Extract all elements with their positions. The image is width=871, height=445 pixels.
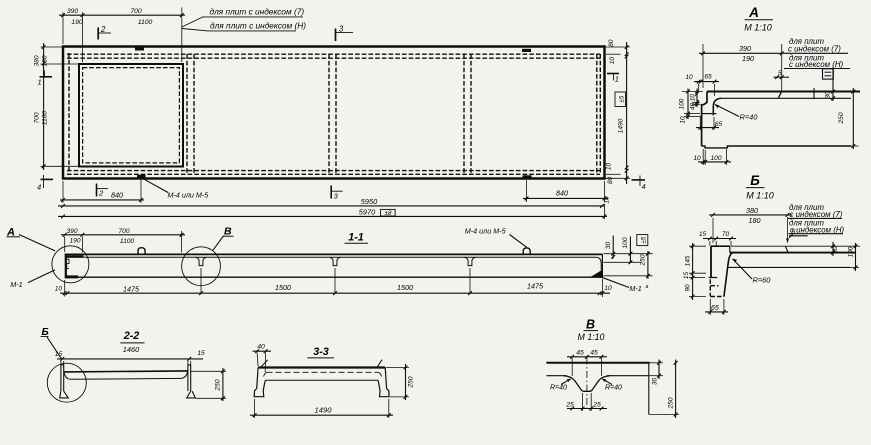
svg-text:250: 250	[667, 397, 674, 409]
svg-text:30: 30	[652, 378, 659, 386]
svg-text:380: 380	[746, 206, 758, 215]
svg-text:65: 65	[715, 121, 723, 128]
svg-text:для плит с индексом (Н): для плит с индексом (Н)	[210, 21, 306, 31]
svg-text:15: 15	[699, 231, 707, 238]
svg-text:10: 10	[604, 196, 611, 204]
svg-text:65: 65	[711, 305, 719, 312]
svg-text:10: 10	[685, 74, 693, 81]
svg-text:380: 380	[34, 55, 41, 66]
svg-text:4: 4	[642, 182, 646, 191]
svg-text:а: а	[646, 284, 649, 290]
svg-text:10: 10	[606, 163, 613, 171]
svg-text:2: 2	[98, 188, 104, 197]
svg-text:70: 70	[722, 231, 730, 238]
svg-text:40: 40	[689, 102, 696, 110]
svg-text:390: 390	[66, 228, 77, 235]
svg-text:15: 15	[197, 350, 205, 357]
svg-text:1100: 1100	[120, 238, 135, 245]
svg-text:250: 250	[640, 254, 647, 266]
svg-text:R=40: R=40	[605, 384, 622, 391]
svg-text:15: 15	[683, 272, 690, 280]
svg-text:2-2: 2-2	[123, 330, 140, 342]
svg-text:1: 1	[38, 78, 42, 87]
svg-text:1475: 1475	[527, 282, 544, 291]
svg-text:190: 190	[742, 54, 754, 63]
svg-text:В: В	[586, 318, 595, 332]
svg-text:45: 45	[590, 350, 598, 357]
svg-text:Б: Б	[750, 173, 760, 188]
svg-text:±5: ±5	[618, 95, 625, 103]
svg-text:45: 45	[576, 350, 584, 357]
svg-text:с индексом (Н): с индексом (Н)	[789, 60, 844, 69]
svg-text:4: 4	[37, 183, 41, 192]
svg-text:1500: 1500	[397, 283, 413, 292]
svg-text:80: 80	[607, 177, 614, 185]
svg-text:1100: 1100	[41, 111, 48, 126]
svg-text:700: 700	[130, 8, 142, 15]
svg-text:1500: 1500	[275, 283, 291, 292]
svg-text:100: 100	[622, 237, 629, 248]
svg-text:840: 840	[556, 188, 568, 197]
svg-text:М-4 или М-5: М-4 или М-5	[168, 190, 210, 199]
svg-text:А: А	[748, 5, 759, 20]
svg-text:1-1: 1-1	[348, 232, 364, 244]
svg-text:250: 250	[838, 112, 845, 124]
svg-text:25: 25	[592, 401, 601, 408]
svg-text:10: 10	[689, 94, 696, 102]
svg-text:180: 180	[41, 55, 48, 66]
svg-text:180: 180	[749, 216, 761, 225]
svg-text:100: 100	[678, 98, 685, 109]
svg-text:30: 30	[825, 91, 832, 99]
svg-text:±5: ±5	[640, 236, 647, 243]
svg-text:65: 65	[704, 74, 712, 81]
svg-text:1490: 1490	[315, 406, 333, 415]
svg-text:с индексом (Н): с индексом (Н)	[790, 225, 845, 234]
svg-text:700: 700	[34, 112, 41, 123]
svg-text:250: 250	[408, 376, 415, 388]
svg-text:2: 2	[100, 25, 106, 34]
svg-text:с индексом (7): с индексом (7)	[788, 44, 841, 53]
svg-text:80: 80	[608, 39, 615, 47]
svg-text:10: 10	[604, 285, 612, 292]
svg-text:для плит с индексом (7): для плит с индексом (7)	[210, 7, 305, 17]
svg-text:10: 10	[679, 116, 686, 124]
svg-text:1100: 1100	[138, 19, 153, 26]
svg-text:R=60: R=60	[753, 275, 772, 284]
svg-text:90: 90	[684, 284, 691, 292]
svg-text:1460: 1460	[123, 345, 140, 354]
svg-text:1: 1	[615, 75, 619, 84]
svg-text:30: 30	[605, 242, 612, 250]
svg-text:±8: ±8	[385, 210, 392, 217]
svg-text:М-1: М-1	[10, 280, 22, 289]
svg-text:390: 390	[67, 8, 79, 15]
svg-text:3: 3	[339, 24, 344, 33]
svg-text:М-4 или М-5: М-4 или М-5	[465, 227, 507, 236]
svg-text:5950: 5950	[361, 197, 378, 206]
svg-text:190: 190	[71, 19, 83, 26]
svg-text:М 1:10: М 1:10	[744, 23, 772, 33]
svg-text:700: 700	[118, 228, 129, 235]
svg-text:10: 10	[693, 155, 701, 162]
svg-text:40: 40	[257, 344, 265, 351]
svg-text:3-3: 3-3	[313, 346, 329, 358]
svg-text:1490: 1490	[617, 118, 624, 133]
svg-text:R=40: R=40	[550, 384, 567, 391]
svg-text:10: 10	[609, 57, 616, 65]
svg-text:30: 30	[832, 246, 839, 254]
svg-text:840: 840	[111, 191, 123, 200]
svg-text:R=40: R=40	[740, 113, 759, 122]
svg-text:5970: 5970	[359, 207, 376, 216]
svg-text:145: 145	[684, 255, 691, 266]
svg-text:М-1: М-1	[629, 284, 641, 293]
svg-text:190: 190	[69, 238, 80, 245]
svg-text:100: 100	[710, 155, 721, 162]
svg-text:250: 250	[215, 379, 222, 391]
svg-text:25: 25	[565, 401, 574, 408]
svg-text:М 1:10: М 1:10	[746, 191, 774, 201]
svg-text:390: 390	[739, 44, 751, 53]
svg-text:100: 100	[847, 246, 854, 257]
svg-text:10: 10	[55, 286, 63, 293]
svg-text:1475: 1475	[123, 285, 140, 294]
svg-text:М 1:10: М 1:10	[578, 332, 605, 342]
